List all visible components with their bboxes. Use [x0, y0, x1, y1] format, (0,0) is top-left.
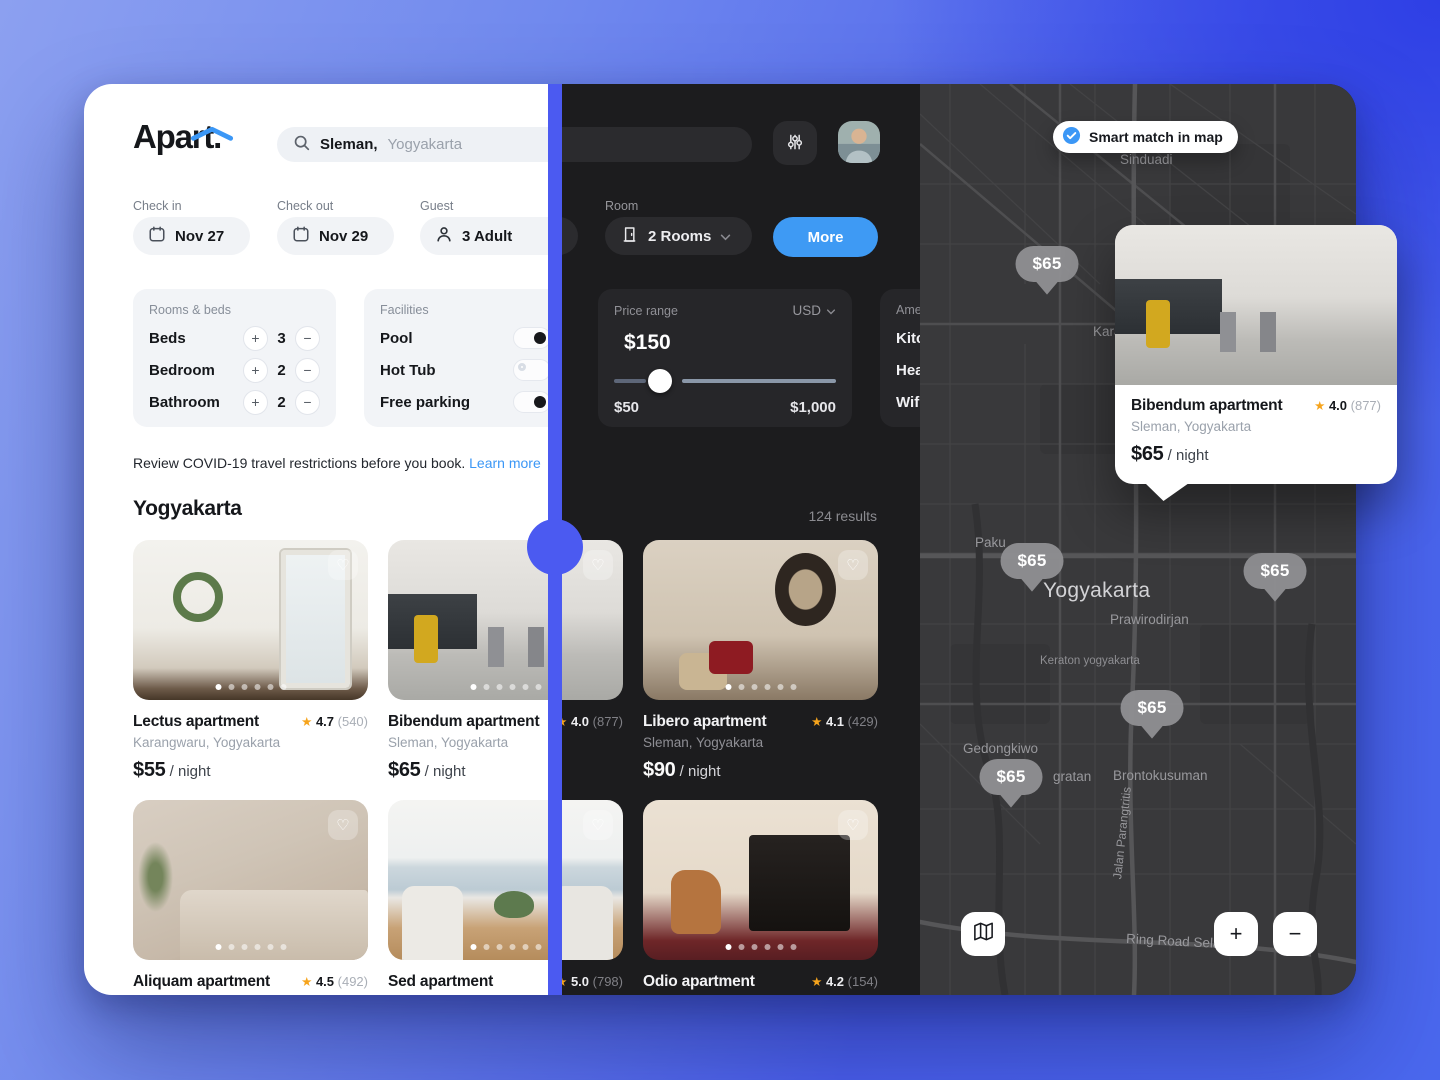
listing-price: $65 / night [388, 759, 555, 782]
carousel-dots[interactable] [725, 684, 796, 690]
listing-rating: ★ 4.5 (492) [301, 974, 368, 989]
rooms-beds-panel: Rooms & beds Beds + 3 − Bedroom + 2 − [133, 289, 336, 427]
star-icon: ★ [811, 715, 822, 729]
zoom-out-button[interactable]: − [1273, 912, 1317, 956]
app-window: Apart. Sleman, Yogyakarta Check in Check… [84, 84, 1356, 995]
check-in-value: Nov 27 [175, 228, 224, 245]
price-range-bounds: $50$1,000 [614, 399, 836, 416]
bathroom-increment-button[interactable]: + [243, 390, 268, 415]
search-query-region: Yogyakarta [388, 136, 463, 153]
logo: Apart. [133, 118, 221, 156]
guest-label: Guest [420, 199, 453, 213]
price-min: $50 [614, 399, 639, 416]
favorite-button[interactable]: ♡ [583, 550, 613, 580]
more-filters-button[interactable]: More [773, 217, 878, 257]
popup-listing-name: Bibendum apartment [1131, 397, 1282, 415]
dark-theme-panel: Room 2 Rooms More Price range USD $150 $… [555, 84, 1356, 995]
listing-name: Libero apartment [643, 713, 766, 731]
carousel-dots[interactable] [215, 684, 286, 690]
listing-photo: ♡ [643, 800, 878, 960]
room-select[interactable]: 2 Rooms [605, 217, 752, 255]
carousel-dots[interactable] [470, 944, 541, 950]
listing-name: Odio apartment [643, 973, 755, 991]
listing-card-bibendum[interactable]: ♡ Bibendum apartment ★ 4.0 (877) Sleman,… [555, 540, 623, 782]
smart-match-toggle[interactable]: Smart match in map [1053, 121, 1238, 153]
check-out-label: Check out [277, 199, 333, 213]
map-label-sinduadi: Sinduadi [1120, 152, 1173, 167]
check-out-value: Nov 29 [319, 228, 368, 245]
bedroom-count: 2 [275, 362, 288, 379]
minus-icon: − [1289, 921, 1302, 947]
carousel-dots[interactable] [725, 944, 796, 950]
listing-rating: ★ 4.0 (877) [556, 714, 623, 729]
learn-more-link[interactable]: Learn more [469, 455, 541, 471]
check-in-field[interactable]: Nov 27 [133, 217, 250, 255]
listing-name: Bibendum apartment [388, 713, 539, 731]
listing-photo: ♡ [388, 800, 555, 960]
beds-count: 3 [275, 330, 288, 347]
listing-rating: ★ 4.2 (154) [811, 974, 878, 989]
listing-card-sed[interactable]: ♡ Sed apartment ★ 5.0 (798) [388, 800, 555, 991]
covid-notice: Review COVID-19 travel restrictions befo… [133, 455, 541, 471]
search-query-city: Sleman, [320, 136, 378, 153]
pool-row: Pool [364, 322, 555, 354]
listing-photo: ♡ [133, 800, 368, 960]
map[interactable]: Sinduadi Karan Paku Yogyakarta Prawirodi… [920, 84, 1356, 995]
map-fold-icon [972, 920, 995, 949]
listing-card-lectus[interactable]: ♡ Lectus apartment ★ 4.7 (540) Karangwar… [133, 540, 368, 782]
listing-rating: ★ 4.7 (540) [301, 714, 368, 729]
smart-match-label: Smart match in map [1089, 129, 1223, 145]
listing-photo: ♡ [643, 540, 878, 700]
favorite-button[interactable]: ♡ [583, 810, 613, 840]
room-value: 2 Rooms [648, 228, 711, 245]
map-price-pin[interactable]: $65 [1001, 543, 1064, 579]
map-label-prawirodirjan: Prawirodirjan [1110, 612, 1189, 627]
map-label-paku: Paku [975, 535, 1006, 550]
listing-price: $90 / night [643, 759, 878, 782]
listing-photo: ♡ [133, 540, 368, 700]
facilities-title: Facilities [364, 289, 555, 322]
filters-button[interactable] [773, 121, 817, 165]
carousel-dots[interactable] [470, 684, 541, 690]
comparison-slider-handle[interactable] [527, 519, 583, 575]
listing-name: Lectus apartment [133, 713, 259, 731]
listing-price: $55 / night [133, 759, 368, 782]
rooms-beds-title: Rooms & beds [133, 289, 336, 322]
room-label: Room [605, 199, 638, 213]
bathroom-row: Bathroom + 2 − [133, 386, 336, 418]
star-icon: ★ [1314, 399, 1325, 413]
star-icon: ★ [811, 975, 822, 989]
chevron-down-icon [826, 303, 836, 318]
map-label-yogyakarta: Yogyakarta [1043, 579, 1150, 603]
sliders-icon [785, 132, 805, 155]
listing-photo: ♡ [388, 540, 555, 700]
bedroom-decrement-button[interactable]: − [295, 358, 320, 383]
beds-row: Beds + 3 − [133, 322, 336, 354]
facilities-panel: Facilities Pool Hot Tub Free parking [364, 289, 555, 427]
heart-icon: ♡ [336, 556, 349, 574]
heart-icon: ♡ [591, 556, 604, 574]
guest-field[interactable]: 3 Adult [420, 217, 555, 255]
listing-location: Karangwaru, Yogyakarta [133, 735, 368, 750]
plus-icon: + [1230, 921, 1243, 947]
star-icon: ★ [301, 975, 312, 989]
slider-knob[interactable] [648, 369, 672, 393]
listing-card-sed[interactable]: ♡ Sed apartment ★ 5.0 (798) [555, 800, 623, 991]
beds-increment-button[interactable]: + [243, 326, 268, 351]
search-input[interactable] [555, 127, 752, 162]
popup-listing-rating: ★ 4.0 (877) [1314, 398, 1381, 413]
person-icon [435, 225, 453, 247]
map-label-keraton: Keraton yogyakarta [1040, 655, 1140, 667]
door-icon [620, 225, 639, 248]
bathroom-decrement-button[interactable]: − [295, 390, 320, 415]
listing-rating: ★ 4.1 (429) [811, 714, 878, 729]
listing-location: Sleman, Yogyakarta [388, 735, 555, 750]
logo-roof-icon [190, 112, 234, 150]
listing-card-aliquam[interactable]: ♡ Aliquam apartment ★ 4.5 (492) [133, 800, 368, 991]
listing-price: $65 / night [555, 759, 623, 782]
hot-tub-toggle[interactable] [513, 359, 551, 381]
favorite-button[interactable]: ♡ [328, 550, 358, 580]
hot-tub-row: Hot Tub [364, 354, 555, 386]
popup-listing-price: $65 / night [1131, 443, 1381, 466]
guest-value: 3 Adult [462, 228, 512, 245]
bedroom-increment-button[interactable]: + [243, 358, 268, 383]
listing-name: Sed apartment [388, 973, 493, 991]
heart-icon: ♡ [846, 556, 859, 574]
check-in-label: Check in [133, 199, 182, 213]
heart-icon: ♡ [846, 816, 859, 834]
map-listing-popup[interactable]: Bibendum apartment ★ 4.0 (877) Sleman, Y… [1115, 225, 1397, 484]
heart-icon: ♡ [591, 816, 604, 834]
heart-icon: ♡ [336, 816, 349, 834]
map-label-gratan: gratan [1053, 769, 1091, 784]
price-current-value: $150 [624, 331, 671, 355]
user-avatar[interactable] [838, 121, 880, 163]
listing-card-bibendum[interactable]: ♡ Bibendum apartment ★ 4.0 (877) Sleman,… [388, 540, 555, 782]
map-label-brontokusuman: Brontokusuman [1113, 768, 1208, 783]
search-input[interactable]: Sleman, Yogyakarta [277, 127, 555, 162]
listing-name: Aliquam apartment [133, 973, 270, 991]
popup-listing-location: Sleman, Yogyakarta [1131, 419, 1381, 434]
results-count: 124 results [598, 508, 877, 524]
price-slider[interactable] [614, 369, 836, 393]
free-parking-row: Free parking [364, 386, 555, 418]
map-label-gedongkiwo: Gedongkiwo [963, 741, 1038, 756]
favorite-button[interactable]: ♡ [328, 810, 358, 840]
zoom-in-button[interactable]: + [1214, 912, 1258, 956]
check-out-field[interactable]: Nov 29 [277, 217, 394, 255]
calendar-icon [148, 225, 166, 247]
price-max: $1,000 [790, 399, 836, 416]
price-range-title: Price range [614, 304, 678, 318]
popup-photo [1115, 225, 1397, 385]
map-price-pin[interactable]: $65 [980, 759, 1043, 795]
carousel-dots[interactable] [215, 944, 286, 950]
price-range-panel: Price range USD $150 $50$1,000 [598, 289, 852, 427]
beds-decrement-button[interactable]: − [295, 326, 320, 351]
map-price-pin[interactable]: $65 [1121, 690, 1184, 726]
map-price-pin[interactable]: $65 [1244, 553, 1307, 589]
chevron-down-icon [720, 228, 731, 245]
favorite-button[interactable]: ♡ [838, 810, 868, 840]
listing-location: Sleman, Yogyakarta [555, 735, 623, 750]
listing-photo: ♡ [555, 800, 623, 960]
listing-card-odio[interactable]: ♡ Odio apartment ★ 4.2 (154) [643, 800, 878, 991]
listing-card-libero[interactable]: ♡ Libero apartment ★ 4.1 (429) Sleman, Y… [643, 540, 878, 782]
currency-select[interactable]: USD [792, 303, 836, 318]
light-theme-panel: Apart. Sleman, Yogyakarta Check in Check… [84, 84, 555, 995]
pool-toggle[interactable] [513, 327, 551, 349]
free-parking-toggle[interactable] [513, 391, 551, 413]
search-icon [293, 134, 310, 156]
map-style-button[interactable] [961, 912, 1005, 956]
listing-rating: ★ 5.0 (798) [556, 974, 623, 989]
favorite-button[interactable]: ♡ [838, 550, 868, 580]
star-icon: ★ [301, 715, 312, 729]
check-circle-icon [1062, 126, 1081, 148]
desktop-background: Apart. Sleman, Yogyakarta Check in Check… [0, 0, 1440, 1080]
results-city-heading: Yogyakarta [133, 497, 242, 521]
bathroom-count: 2 [275, 394, 288, 411]
listing-location: Sleman, Yogyakarta [643, 735, 878, 750]
map-price-pin[interactable]: $65 [1016, 246, 1079, 282]
calendar-icon [292, 225, 310, 247]
bedroom-row: Bedroom + 2 − [133, 354, 336, 386]
